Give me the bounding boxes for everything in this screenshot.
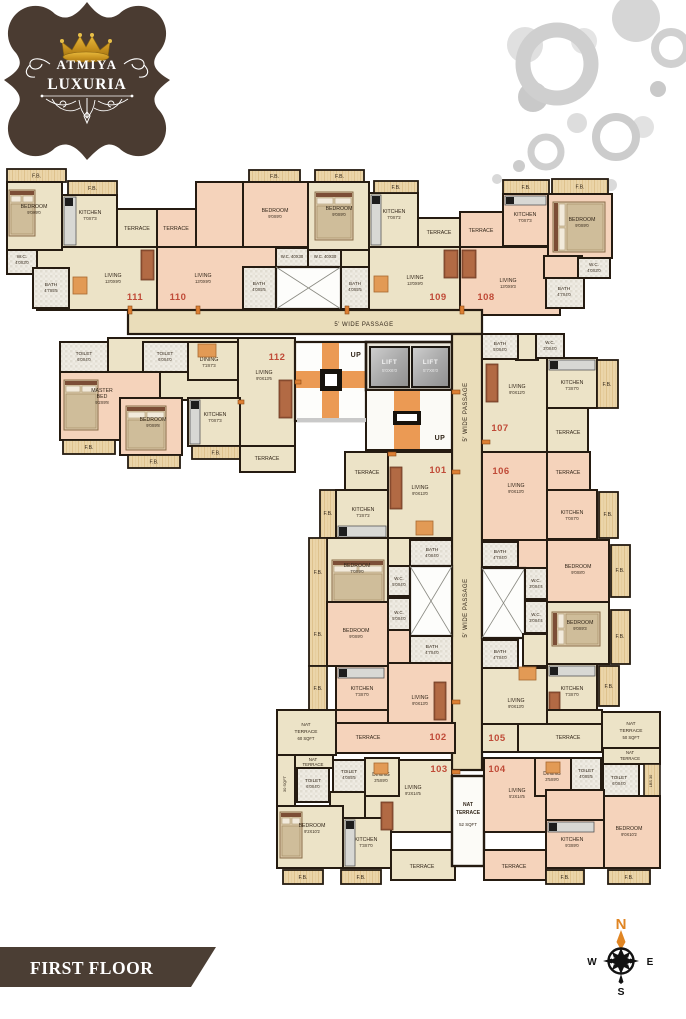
svg-text:TERRACE: TERRACE — [469, 228, 494, 234]
svg-text:7'3X7'0: 7'3X7'0 — [359, 843, 373, 848]
svg-text:F.B.: F.B. — [299, 875, 308, 881]
svg-text:F.B.: F.B. — [270, 174, 279, 180]
svg-text:BATH: BATH — [349, 281, 361, 286]
svg-text:TERRACE: TERRACE — [355, 470, 380, 476]
svg-text:9'0X9'0: 9'0X9'0 — [332, 212, 346, 217]
svg-text:TERRACE: TERRACE — [556, 735, 581, 741]
svg-text:UP: UP — [351, 352, 362, 359]
svg-text:TERRACE: TERRACE — [456, 810, 481, 816]
svg-text:5'0X4'0: 5'0X4'0 — [392, 582, 406, 587]
svg-text:13'0X9'0: 13'0X9'0 — [407, 281, 423, 286]
svg-text:TERRACE: TERRACE — [556, 470, 581, 476]
svg-text:9'2X9'8: 9'2X9'8 — [95, 400, 109, 405]
svg-text:13'0X9'0: 13'0X9'0 — [105, 279, 121, 284]
svg-text:E: E — [647, 957, 654, 968]
svg-text:9'0X13'0: 9'0X13'0 — [508, 704, 524, 709]
svg-text:9'0X9'0: 9'0X9'0 — [27, 210, 41, 215]
svg-text:F.B.: F.B. — [605, 684, 614, 690]
svg-text:7'3X7'0: 7'3X7'0 — [565, 692, 579, 697]
svg-text:TERRACE: TERRACE — [410, 864, 435, 870]
svg-text:F.B.: F.B. — [314, 570, 323, 576]
svg-text:4'0X5'5: 4'0X5'5 — [348, 287, 362, 292]
svg-text:4'7X5'5: 4'7X5'5 — [44, 288, 58, 293]
svg-text:F.B.: F.B. — [357, 875, 366, 881]
svg-text:NAT: NAT — [463, 802, 473, 808]
svg-text:102: 102 — [429, 732, 446, 743]
svg-text:UP: UP — [435, 435, 446, 442]
svg-text:S: S — [617, 986, 624, 998]
svg-text:6'0X4'0: 6'0X4'0 — [77, 357, 91, 362]
svg-text:110: 110 — [170, 292, 187, 303]
svg-text:103: 103 — [430, 764, 447, 775]
svg-text:106: 106 — [492, 466, 509, 477]
svg-text:4'7X4'0: 4'7X4'0 — [425, 650, 439, 655]
svg-text:TERRACE: TERRACE — [620, 728, 643, 734]
svg-text:5′ WIDE PASSAGE: 5′ WIDE PASSAGE — [463, 578, 469, 637]
svg-text:5' WIDE PASSAGE: 5' WIDE PASSAGE — [334, 322, 393, 328]
svg-text:W.C.: W.C. — [394, 610, 404, 615]
svg-text:W.C. 40X30: W.C. 40X30 — [281, 254, 304, 259]
svg-text:TOILET: TOILET — [611, 775, 627, 780]
svg-text:TERRACE: TERRACE — [356, 735, 381, 741]
svg-text:3'0X4'4: 3'0X4'4 — [529, 618, 543, 623]
svg-text:4'0X3'0: 4'0X3'0 — [15, 260, 29, 265]
svg-text:7'3X7'0: 7'3X7'0 — [565, 386, 579, 391]
svg-text:F.B.: F.B. — [212, 450, 221, 456]
svg-text:TERRACE: TERRACE — [124, 226, 150, 232]
svg-text:TERRACE: TERRACE — [502, 864, 527, 870]
svg-text:9'0X9'0: 9'0X9'0 — [268, 214, 282, 219]
svg-text:NAT: NAT — [301, 722, 310, 728]
svg-text:3'5X9'0: 3'5X9'0 — [545, 777, 559, 782]
svg-text:F.B.: F.B. — [616, 634, 625, 640]
svg-text:9'0X13'6: 9'0X13'6 — [256, 376, 272, 381]
svg-text:F.B.: F.B. — [88, 186, 97, 192]
svg-text:105: 105 — [488, 733, 506, 744]
svg-text:W.C.: W.C. — [531, 578, 541, 583]
svg-text:F.B.: F.B. — [522, 185, 531, 191]
svg-text:NAT: NAT — [626, 750, 635, 755]
svg-text:7'0X7'3: 7'0X7'3 — [208, 418, 222, 423]
svg-text:3'0X4'0: 3'0X4'0 — [543, 346, 557, 351]
svg-text:9'0X13'0: 9'0X13'0 — [412, 491, 428, 496]
svg-text:7'0X7'3: 7'0X7'3 — [83, 216, 97, 221]
svg-text:F.B.: F.B. — [392, 185, 401, 191]
svg-text:LIFT: LIFT — [423, 359, 439, 366]
svg-text:9'0X12'0: 9'0X12'0 — [509, 390, 525, 395]
svg-text:ATMIYA: ATMIYA — [56, 57, 117, 72]
svg-text:9'0X9'3: 9'0X9'3 — [573, 626, 587, 631]
svg-text:9'2X14'5: 9'2X14'5 — [405, 791, 421, 796]
svg-text:111: 111 — [127, 292, 144, 303]
svg-text:W.C.: W.C. — [545, 340, 555, 345]
svg-text:3'0X4'4: 3'0X4'4 — [529, 584, 543, 589]
svg-text:107: 107 — [491, 423, 508, 434]
svg-text:60 SQFT: 60 SQFT — [298, 736, 315, 741]
svg-text:LIFT: LIFT — [382, 359, 398, 366]
svg-text:5'2X14'5: 5'2X14'5 — [509, 794, 525, 799]
svg-text:5'0X4'0: 5'0X4'0 — [392, 616, 406, 621]
svg-text:9'0X9'8: 9'0X9'8 — [146, 423, 160, 428]
svg-text:7'3X7'0: 7'3X7'0 — [355, 692, 369, 697]
svg-text:4'0X5'5: 4'0X5'5 — [252, 287, 266, 292]
svg-text:9'0X13'0: 9'0X13'0 — [508, 489, 524, 494]
svg-text:F.B.: F.B. — [604, 512, 613, 518]
svg-text:TERRACE: TERRACE — [427, 230, 452, 236]
svg-text:7'2X7'3: 7'2X7'3 — [202, 363, 216, 368]
svg-text:5'7X6'0: 5'7X6'0 — [423, 368, 438, 373]
svg-text:W.C.: W.C. — [394, 576, 404, 581]
svg-text:4'7X4'0: 4'7X4'0 — [493, 655, 507, 660]
svg-text:F.B.: F.B. — [324, 511, 333, 517]
svg-text:FIRST FLOOR: FIRST FLOOR — [30, 958, 153, 978]
svg-text:7'2X7'2: 7'2X7'2 — [356, 513, 370, 518]
svg-text:7'0X7'3: 7'0X7'3 — [518, 218, 532, 223]
svg-text:3'5X9'0: 3'5X9'0 — [374, 778, 388, 783]
svg-text:13'0X9'3: 13'0X9'3 — [500, 284, 516, 289]
svg-text:5′ WIDE PASSAGE: 5′ WIDE PASSAGE — [463, 382, 469, 441]
svg-text:TOILET: TOILET — [341, 769, 357, 774]
svg-text:F.B.: F.B. — [32, 173, 41, 179]
svg-text:4'7X4'0: 4'7X4'0 — [493, 555, 507, 560]
svg-text:9'3X9'0: 9'3X9'0 — [565, 843, 579, 848]
svg-text:W.C. 40X30: W.C. 40X30 — [314, 254, 337, 259]
svg-text:5'0X4'0: 5'0X4'0 — [493, 347, 507, 352]
svg-text:101: 101 — [429, 465, 447, 476]
svg-text:9'0X10'2: 9'0X10'2 — [621, 832, 637, 837]
svg-text:4'0X4'0: 4'0X4'0 — [425, 553, 439, 558]
svg-text:TOILET: TOILET — [305, 778, 321, 783]
svg-text:9'0X9'0: 9'0X9'0 — [349, 634, 363, 639]
svg-text:F.B.: F.B. — [314, 686, 323, 692]
svg-text:4'0X3'0: 4'0X3'0 — [587, 268, 601, 273]
svg-text:13'0X9'0: 13'0X9'0 — [195, 279, 211, 284]
svg-text:F.B.: F.B. — [616, 568, 625, 574]
svg-text:5'0X6'0: 5'0X6'0 — [382, 368, 397, 373]
svg-text:F.B.: F.B. — [561, 875, 570, 881]
svg-text:7'0X7'2: 7'0X7'2 — [387, 215, 401, 220]
svg-text:108: 108 — [477, 292, 494, 303]
svg-text:7'0X9'0: 7'0X9'0 — [350, 569, 364, 574]
svg-text:LBS 30: LBS 30 — [649, 775, 653, 787]
svg-text:6'0X4'0: 6'0X4'0 — [158, 357, 172, 362]
svg-text:TERRACE: TERRACE — [163, 226, 189, 232]
svg-text:104: 104 — [488, 764, 506, 775]
svg-text:TOILET: TOILET — [578, 768, 594, 773]
svg-text:9'2X10'2: 9'2X10'2 — [304, 829, 320, 834]
svg-text:4'7X4'0: 4'7X4'0 — [557, 292, 571, 297]
svg-text:F.B.: F.B. — [85, 445, 94, 451]
svg-text:TERRACE: TERRACE — [620, 756, 640, 761]
svg-text:7'0X7'0: 7'0X7'0 — [565, 516, 579, 521]
svg-text:TERRACE: TERRACE — [255, 456, 280, 462]
svg-text:9'0X9'0: 9'0X9'0 — [575, 223, 589, 228]
svg-text:NAT: NAT — [626, 721, 635, 727]
svg-text:W.C.: W.C. — [589, 262, 599, 267]
svg-text:F.B.: F.B. — [314, 632, 323, 638]
svg-text:6'0X4'0: 6'0X4'0 — [612, 781, 626, 786]
svg-text:112: 112 — [269, 352, 286, 363]
svg-text:50 SQFT: 50 SQFT — [623, 735, 640, 740]
svg-text:4'0X5'5: 4'0X5'5 — [342, 775, 356, 780]
svg-text:F.B.: F.B. — [576, 184, 585, 190]
svg-text:9'0X8'0: 9'0X8'0 — [571, 570, 585, 575]
svg-text:W: W — [587, 957, 597, 968]
svg-text:F.B.: F.B. — [150, 459, 159, 465]
svg-text:109: 109 — [429, 292, 446, 303]
svg-text:F.B.: F.B. — [335, 174, 344, 180]
svg-text:30 SQFT: 30 SQFT — [282, 775, 287, 792]
svg-text:6'0X4'0: 6'0X4'0 — [306, 784, 320, 789]
svg-text:F.B.: F.B. — [625, 875, 634, 881]
svg-text:W.C.: W.C. — [531, 612, 541, 617]
svg-text:9'0X13'0: 9'0X13'0 — [412, 701, 428, 706]
svg-text:TERRACE: TERRACE — [295, 729, 318, 735]
svg-text:F.B.: F.B. — [603, 382, 612, 388]
svg-text:4'0X5'5: 4'0X5'5 — [579, 774, 593, 779]
svg-text:TERRACE: TERRACE — [303, 762, 324, 767]
svg-text:52 SQFT: 52 SQFT — [459, 822, 477, 827]
svg-text:TERRACE: TERRACE — [556, 430, 581, 436]
svg-text:LUXURIA: LUXURIA — [47, 76, 126, 93]
